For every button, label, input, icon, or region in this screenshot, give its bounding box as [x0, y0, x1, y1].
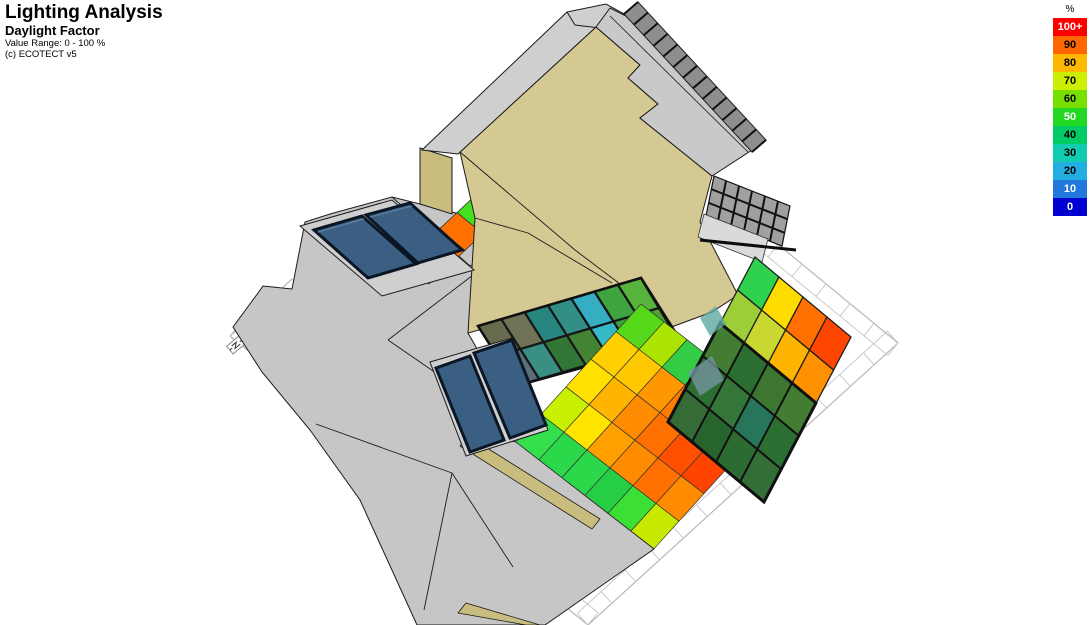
- title-block: Lighting Analysis Daylight Factor Value …: [5, 2, 163, 60]
- value-range-label: Value Range: 0 - 100 %: [5, 38, 163, 49]
- legend: % 100+9080706050403020100: [1053, 1, 1087, 216]
- legend-item: 20: [1053, 162, 1087, 180]
- render-canvas[interactable]: Lighting Analysis Daylight Factor Value …: [0, 0, 1091, 625]
- legend-item: 70: [1053, 72, 1087, 90]
- legend-item: 10: [1053, 180, 1087, 198]
- legend-item: 30: [1053, 144, 1087, 162]
- legend-item: 40: [1053, 126, 1087, 144]
- legend-item: 50: [1053, 108, 1087, 126]
- legend-item: 100+: [1053, 18, 1087, 36]
- legend-scale: 100+9080706050403020100: [1053, 18, 1087, 216]
- analysis-viewport[interactable]: [0, 0, 1091, 625]
- analysis-subtitle: Daylight Factor: [5, 23, 163, 38]
- legend-item: 90: [1053, 36, 1087, 54]
- tan-wall-west: [420, 148, 452, 214]
- copyright-label: (c) ECOTECT v5: [5, 49, 163, 60]
- legend-item: 0: [1053, 198, 1087, 216]
- legend-item: 60: [1053, 90, 1087, 108]
- analysis-title: Lighting Analysis: [5, 2, 163, 23]
- legend-item: 80: [1053, 54, 1087, 72]
- legend-unit-label: %: [1053, 1, 1087, 18]
